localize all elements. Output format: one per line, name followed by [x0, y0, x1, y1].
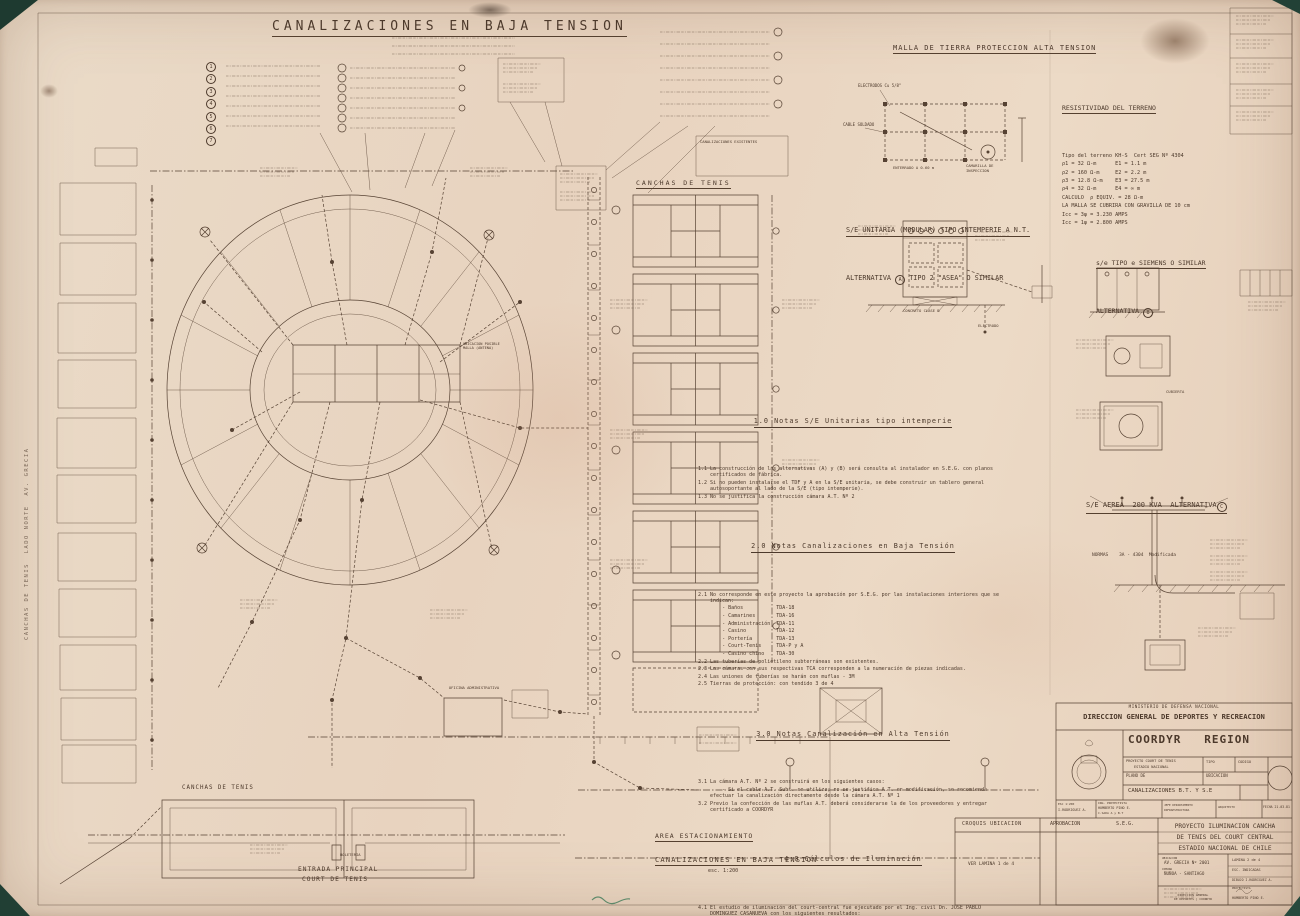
- text-line: 2.3 Las cámaras con sus respectivas TCA …: [698, 666, 1008, 672]
- ver-lamina-note: VER LAMINA 1 de 4: [968, 862, 1014, 867]
- tb-fecha: FECHA 21.03.81: [1263, 806, 1290, 810]
- canchas-bottom-left-label: CANCHAS DE TENIS: [182, 785, 254, 792]
- text-line: 2.1 No corresponde en este proyecto la a…: [698, 592, 1008, 604]
- tb-org2: DE DEPORTES | COORDYR: [1158, 898, 1228, 901]
- text-line: 1.2 Si no pueden instalarse el TDF y A e…: [698, 480, 1008, 492]
- canalizaciones-bt-bottom-title: CANALIZACIONES EN BAJA TENSION: [655, 856, 817, 866]
- malla-title: MALLA DE TIERRA PROTECCION ALTA TENSION: [893, 44, 1096, 54]
- text-line: 2.5 Tierras de protección: con tendido 3…: [698, 681, 1008, 687]
- tb-sig-arq: ARQUITECTO: [1218, 806, 1235, 809]
- text-line: 4: [206, 99, 216, 109]
- tb-ub1: AV. GRECIA Nº 2001: [1164, 861, 1209, 866]
- tb-dib: DIBUJO I.RODRIGUEZ A.: [1232, 879, 1272, 883]
- circled-c: C: [1217, 502, 1227, 512]
- area-estacionamiento-label: AREA ESTACIONAMIENTO: [655, 833, 753, 842]
- scanned-blueprint-photo: CANALIZACIONES EN BAJA TENSION 1234567 M…: [0, 0, 1300, 916]
- se-a-line1: S/E UNITARIA (MODULAR) TIPO INTEMPERIE A…: [846, 227, 1030, 237]
- project-title-3: ESTADIO NACIONAL DE CHILE: [1158, 845, 1292, 852]
- text-line: 1.3 No se justifica la construcción cáma…: [698, 494, 1008, 500]
- text-line: 5: [206, 112, 216, 122]
- project-title-2: DE TENIS DEL COURT CENTRAL: [1158, 834, 1292, 841]
- se-alternativa-b-heading: s/e TIPO e SIEMENS O SIMILAR ALTERNATIVA…: [1096, 223, 1206, 355]
- tb-sig-ing1: ING. PROYECTISTA: [1098, 802, 1127, 805]
- se-b-line1: s/e TIPO e SIEMENS O SIMILAR: [1096, 260, 1206, 269]
- tb-tipo: TIPO: [1206, 760, 1215, 764]
- tb-ubicacion: UBICACION: [1206, 774, 1228, 779]
- text-line: 1: [206, 62, 216, 72]
- text-line: 3.1 La cámara A.T. Nº 2 se construirá en…: [698, 779, 1008, 785]
- text-line: 3.2 Previo la confección de las muflas A…: [698, 801, 1008, 813]
- court-de-tenis-label: COURT DE TENIS: [302, 876, 368, 883]
- seg-label: S.E.G.: [1116, 822, 1134, 828]
- text-line: ρ3 = 12.8 Ω-m E3 = 27.5 m: [1062, 179, 1272, 185]
- tb-proyecto2: ESTADIO NACIONAL: [1134, 765, 1169, 769]
- circled-b: B: [1143, 308, 1153, 318]
- project-title-1: PROYECTO ILUMINACION CANCHA: [1158, 823, 1292, 830]
- notes-heading-3: 3.0 Notas Canalización en Alta Tensión: [756, 731, 950, 741]
- text-line: 6: [206, 124, 216, 134]
- se-alternativa-a-heading: S/E UNITARIA (MODULAR) TIPO INTEMPERIE A…: [846, 190, 1030, 322]
- titleblock-ministry: MINISTERIO DE DEFENSA NACIONAL: [1056, 705, 1292, 710]
- resistividad-lines: Tipo del terreno KH-S Cert SEG Nº 4304ρ1…: [1062, 154, 1272, 227]
- tb-proyectista: PROYECTISTA: [1232, 887, 1251, 890]
- tb-plano-title: CANALIZACIONES B.T. Y S.E: [1128, 788, 1212, 794]
- text-line: LA MALLA SE CUBRIRA CON GRAVILLA DE 10 c…: [1062, 204, 1272, 210]
- tb-plano-de: PLANO DE: [1126, 774, 1145, 779]
- text-line: - Administración TDA-11: [698, 621, 1008, 627]
- titleblock-direccion: DIRECCION GENERAL DE DEPORTES Y RECREACI…: [1056, 713, 1292, 721]
- se-a-line2: ALTERNATIVA A TIPO 2 "ASEA" O SIMILAR: [846, 275, 1030, 285]
- circuit-schedule-numbers: 1234567: [206, 62, 216, 149]
- escala-label: esc. 1:200: [708, 869, 738, 875]
- text-line: - Court-Tenis TDA-P y A: [698, 643, 1008, 649]
- notes-items-2: 2.1 No corresponde en este proyecto la a…: [698, 592, 1008, 688]
- oficina-label: OFICINA ADMINISTRATIVA: [444, 686, 504, 691]
- notes-items-1: 1.1 La construcción de las alternativas …: [698, 466, 1008, 499]
- tb-esc-ind: ESC. INDICADAS: [1232, 869, 1261, 873]
- text-line: - Casino TDA-12: [698, 628, 1008, 634]
- malla-cable-label: CABLE SOLDADO: [843, 122, 883, 127]
- text-line: - Baños TDA-18: [698, 605, 1008, 611]
- text-line: ρ4 = 32 Ω-m E4 = ∞ m: [1062, 187, 1272, 193]
- se-a-electrodo-label: ELECTRODO: [978, 324, 999, 328]
- se-c-normas: NORMAS 3A - 4304 Modificada: [1092, 553, 1227, 558]
- tb-sig-dep1: JEFE DEPARTAMENTO: [1164, 804, 1193, 807]
- circled-a: A: [895, 275, 905, 285]
- left-vertical-label: CANCHAS DE TENIS LADO NORTE AV. GRECIA: [24, 420, 30, 640]
- tb-sig-dep2: INFRAESTRUCTURA: [1164, 809, 1189, 812]
- malla-camarilla-label: CAMARILLA DE INSPECCION: [966, 164, 1018, 173]
- se-a-concreto-label: CONCRETO CLASE B: [903, 309, 940, 313]
- text-line: CALCULO ρ EQUIV. = 28 Ω-m: [1062, 196, 1272, 202]
- se-aerea-heading: S/E AEREA 200 KVA ALTERNATIVA C NORMAS 3…: [1086, 464, 1227, 595]
- text-line: 2: [206, 74, 216, 84]
- tb-ub3: ÑUÑOA - SANTIAGO: [1164, 872, 1204, 877]
- text-line: 2.4 Las uniones de tuberías se harán con…: [698, 674, 1008, 680]
- se-c-title: S/E AEREA 200 KVA ALTERNATIVA C: [1086, 501, 1227, 514]
- tb-sig-dibujo: I.RODRIGUEZ A.: [1058, 809, 1087, 813]
- malla-electrodos-label: ELECTRODOS Cu 5/8": [858, 84, 901, 89]
- courts-top-label: CANCHAS DE TENIS: [636, 180, 731, 189]
- text-line: - Casino chino TDA-30: [698, 651, 1008, 657]
- text-line: ρ1 = 32 Ω-m E1 = 1.1 m: [1062, 162, 1272, 168]
- notes-heading-2: 2.0 Notas Canalizaciones en Baja Tensión: [751, 543, 955, 553]
- tb-sig-esc: ESC 1:200: [1058, 803, 1074, 806]
- text-line: 1.1 La construcción de las alternativas …: [698, 466, 1008, 478]
- text-line: 7: [206, 136, 216, 146]
- resistividad-title: RESISTIVIDAD DEL TERRENO: [1062, 105, 1156, 114]
- tb-proyecto1: PROYECTO COURT DE TENIS: [1126, 759, 1176, 763]
- text-line: 4.1 El estudio de iluminación del court-…: [698, 905, 1008, 916]
- se-b-line2: ALTERNATIVA B: [1096, 308, 1206, 318]
- entrada-principal-label: ENTRADA PRINCIPAL: [298, 866, 378, 873]
- text-line: - Camarines TDA-16: [698, 613, 1008, 619]
- tb-sig-ing3: C.SADA A y B.T: [1098, 812, 1123, 815]
- notes-items-4: 4.1 El estudio de iluminación del court-…: [698, 905, 1008, 916]
- text-line: ρ2 = 160 Ω-m E2 = 2.2 m: [1062, 171, 1272, 177]
- main-title: CANALIZACIONES EN BAJA TENSION: [272, 20, 627, 37]
- text-line: - Si el cable A.T. Subt. se utiliza; no …: [698, 787, 1008, 799]
- tb-proy-name: HUMBERTO PINO E.: [1232, 897, 1265, 901]
- antena-note: UBICACION POSIBLE MALLA (ANTENA): [463, 342, 509, 351]
- text-line: - Portería TDA-13: [698, 636, 1008, 642]
- notes-items-3: 3.1 La cámara A.T. Nº 2 se construirá en…: [698, 779, 1008, 812]
- boleteria-label: BOLETERIA: [340, 853, 361, 857]
- canalizaciones-existentes-label: CANALIZACIONES EXISTENTES: [700, 140, 786, 145]
- text-line: 3: [206, 87, 216, 97]
- text-line: Tipo del terreno KH-S Cert SEG Nº 4304: [1062, 154, 1272, 160]
- tb-codigo: CODIGO: [1238, 760, 1251, 764]
- se-b-cubierta-label: CUBIERTA: [1166, 390, 1184, 394]
- notes-heading-1: 1.0 Notas S/E Unitarias tipo intemperie: [754, 418, 953, 428]
- titleblock-coordyr-region: COORDYR REGION: [1128, 734, 1250, 747]
- text-line: Icc = 3φ = 3.230 AMPS: [1062, 213, 1272, 219]
- croquis-label: CROQUIS UBICACION: [962, 822, 1022, 828]
- aprobacion-label: APROBACION: [1050, 822, 1080, 828]
- paper-sheet: CANALIZACIONES EN BAJA TENSION 1234567 M…: [0, 0, 1300, 916]
- malla-enterrado-label: ENTERRADO A 0.60 m: [893, 166, 934, 170]
- tb-lamina: LAMINA 2 de 4: [1232, 858, 1260, 862]
- text-line: 2.2 Las tuberías de polietileno subterrá…: [698, 659, 1008, 665]
